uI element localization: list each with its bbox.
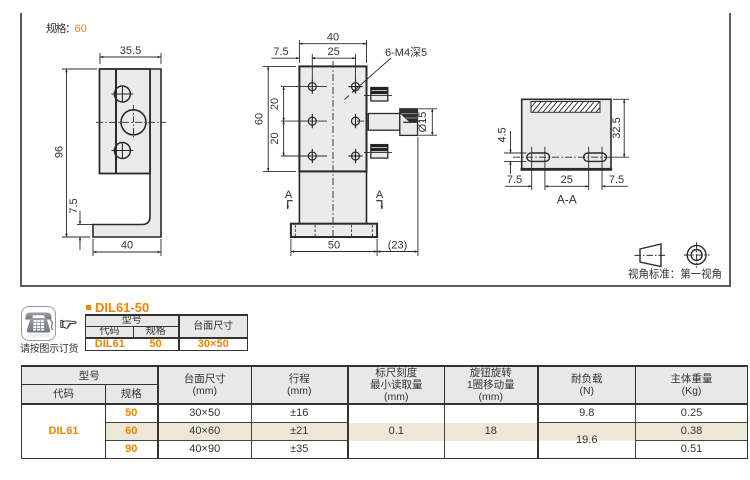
svg-text:25: 25 [561,174,573,186]
svg-text:Ø15: Ø15 [417,112,429,133]
svg-text:40: 40 [327,32,339,44]
svg-text:20: 20 [269,98,281,110]
svg-text:20: 20 [269,132,281,144]
svg-text:40: 40 [121,240,133,252]
svg-text:6-M4深5: 6-M4深5 [385,46,427,59]
svg-text:7.5: 7.5 [609,174,624,186]
svg-text:60: 60 [254,113,266,125]
svg-text:25: 25 [327,46,339,58]
svg-text:50: 50 [328,240,340,252]
svg-text:A: A [376,189,384,201]
svg-text:A-A: A-A [557,193,577,207]
svg-text:7.5: 7.5 [507,174,522,186]
svg-text:视角标准：第一视角: 视角标准：第一视角 [628,267,722,281]
svg-text:4.5: 4.5 [497,127,509,142]
svg-text:(23): (23) [388,240,408,252]
svg-text:35.5: 35.5 [120,45,141,57]
svg-text:A: A [285,189,293,201]
svg-text:96: 96 [54,146,66,158]
svg-text:32.5: 32.5 [611,117,623,138]
svg-text:7.5: 7.5 [68,198,80,213]
svg-text:7.5: 7.5 [273,46,288,58]
